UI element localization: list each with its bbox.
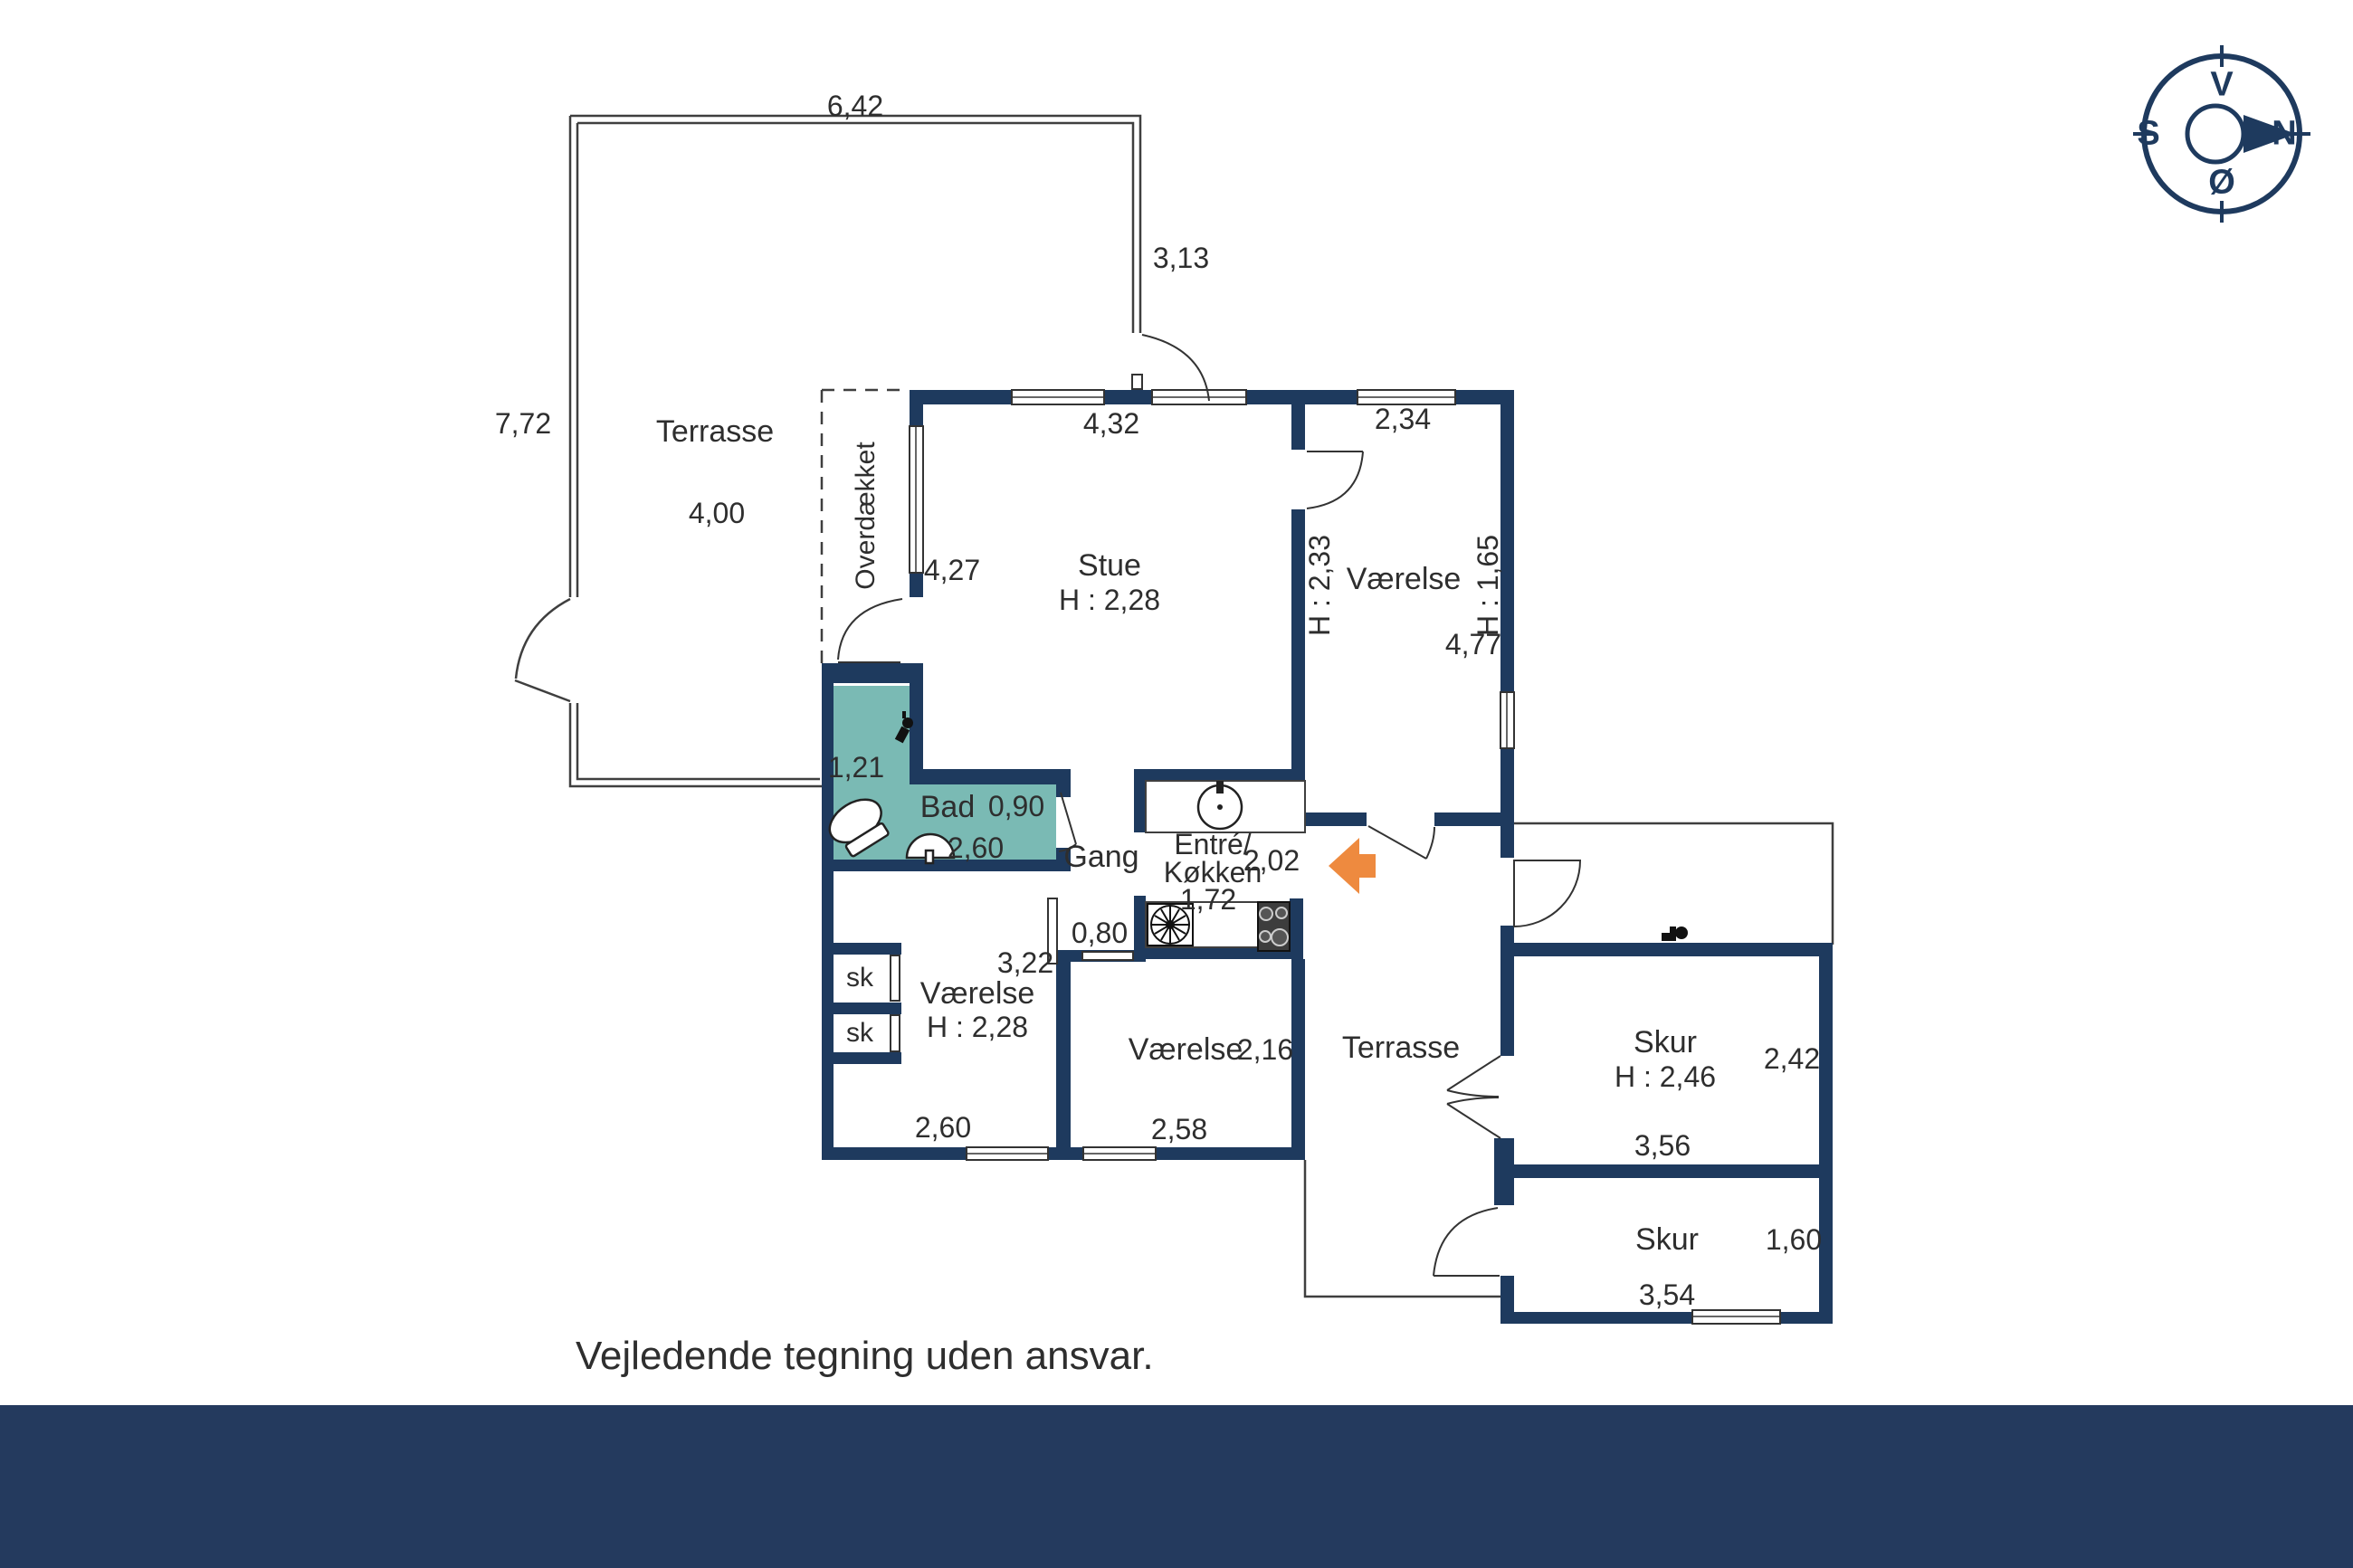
dim-vaerelse-s-258: 2,58 bbox=[1151, 1115, 1207, 1144]
compass-label-v: V bbox=[2210, 66, 2233, 105]
dim-vaerelse-ne-width: 2,34 bbox=[1375, 404, 1431, 433]
dim-gang-080: 0,80 bbox=[1072, 918, 1128, 947]
stove-icon bbox=[1258, 902, 1290, 951]
dim-vaerelse-sw-260: 2,60 bbox=[915, 1113, 971, 1142]
room-vaerelse-s: Værelse bbox=[1129, 1034, 1243, 1065]
dim-bad-090: 0,90 bbox=[988, 792, 1044, 821]
room-vaerelse-ne: Værelse bbox=[1347, 564, 1462, 594]
dim-entre-172: 1,72 bbox=[1180, 885, 1236, 914]
dim-entre-202: 2,02 bbox=[1243, 846, 1300, 875]
closet-sk-1: sk bbox=[846, 965, 873, 992]
floor-plan-page: 6,42 7,72 Terrasse 4,00 3,13 Overdækket … bbox=[0, 0, 2353, 1568]
closet-sk-2: sk bbox=[846, 1020, 873, 1047]
dim-skur-2-354: 3,54 bbox=[1639, 1280, 1695, 1309]
dim-bad-121: 1,21 bbox=[828, 753, 884, 782]
room-overdaekket: Overdækket bbox=[853, 442, 880, 589]
height-233: H : 2,33 bbox=[1305, 535, 1334, 636]
dim-terrace-width: 6,42 bbox=[827, 91, 883, 120]
room-skur-1-height: H : 2,46 bbox=[1615, 1062, 1716, 1091]
dim-skur-1-356: 3,56 bbox=[1634, 1131, 1691, 1160]
floor-plan-drawing bbox=[0, 0, 2353, 1568]
dim-terrace-313: 3,13 bbox=[1153, 243, 1209, 272]
dim-stue-width: 4,32 bbox=[1083, 409, 1139, 438]
garden-shower-icon bbox=[1662, 927, 1688, 941]
entrance-arrow-icon bbox=[1329, 838, 1376, 894]
room-vaerelse-sw: Værelse bbox=[920, 978, 1035, 1009]
dim-skur-2-160: 1,60 bbox=[1766, 1225, 1822, 1254]
dim-terrace-height: 7,72 bbox=[495, 409, 551, 438]
compass-label-oe: Ø bbox=[2208, 164, 2235, 203]
dim-skur-1-242: 2,42 bbox=[1764, 1044, 1820, 1073]
room-entre-line1: Entré/ bbox=[1174, 830, 1251, 859]
compass-label-s: S bbox=[2137, 115, 2159, 154]
dim-vaerelse-sw-322: 3,22 bbox=[997, 948, 1053, 977]
disclaimer-text: Vejledende tegning uden ansvar. bbox=[576, 1334, 1154, 1379]
room-stue-height: H : 2,28 bbox=[1059, 585, 1160, 614]
room-skur-1: Skur bbox=[1634, 1027, 1697, 1058]
room-terrasse-east: Terrasse bbox=[1342, 1032, 1460, 1063]
room-stue: Stue bbox=[1078, 550, 1141, 581]
dim-terrace-400: 4,00 bbox=[689, 499, 745, 527]
room-vaerelse-sw-height: H : 2,28 bbox=[927, 1012, 1028, 1041]
room-bad: Bad bbox=[920, 792, 976, 822]
room-gang: Gang bbox=[1063, 841, 1138, 872]
dim-vaerelse-s-216: 2,16 bbox=[1237, 1035, 1293, 1064]
dim-stue-west-427: 4,27 bbox=[924, 556, 980, 584]
room-terrasse-west: Terrasse bbox=[656, 416, 774, 447]
room-skur-2: Skur bbox=[1635, 1224, 1699, 1255]
height-165: H : 1,65 bbox=[1473, 535, 1502, 636]
dim-vaerelse-ne-477: 4,77 bbox=[1445, 630, 1501, 659]
east-wall-door bbox=[1514, 860, 1580, 927]
compass-label-n: N bbox=[2272, 115, 2296, 154]
dim-bad-260: 2,60 bbox=[948, 833, 1004, 862]
footer-bar: REΛL bbox=[0, 1405, 2353, 1568]
